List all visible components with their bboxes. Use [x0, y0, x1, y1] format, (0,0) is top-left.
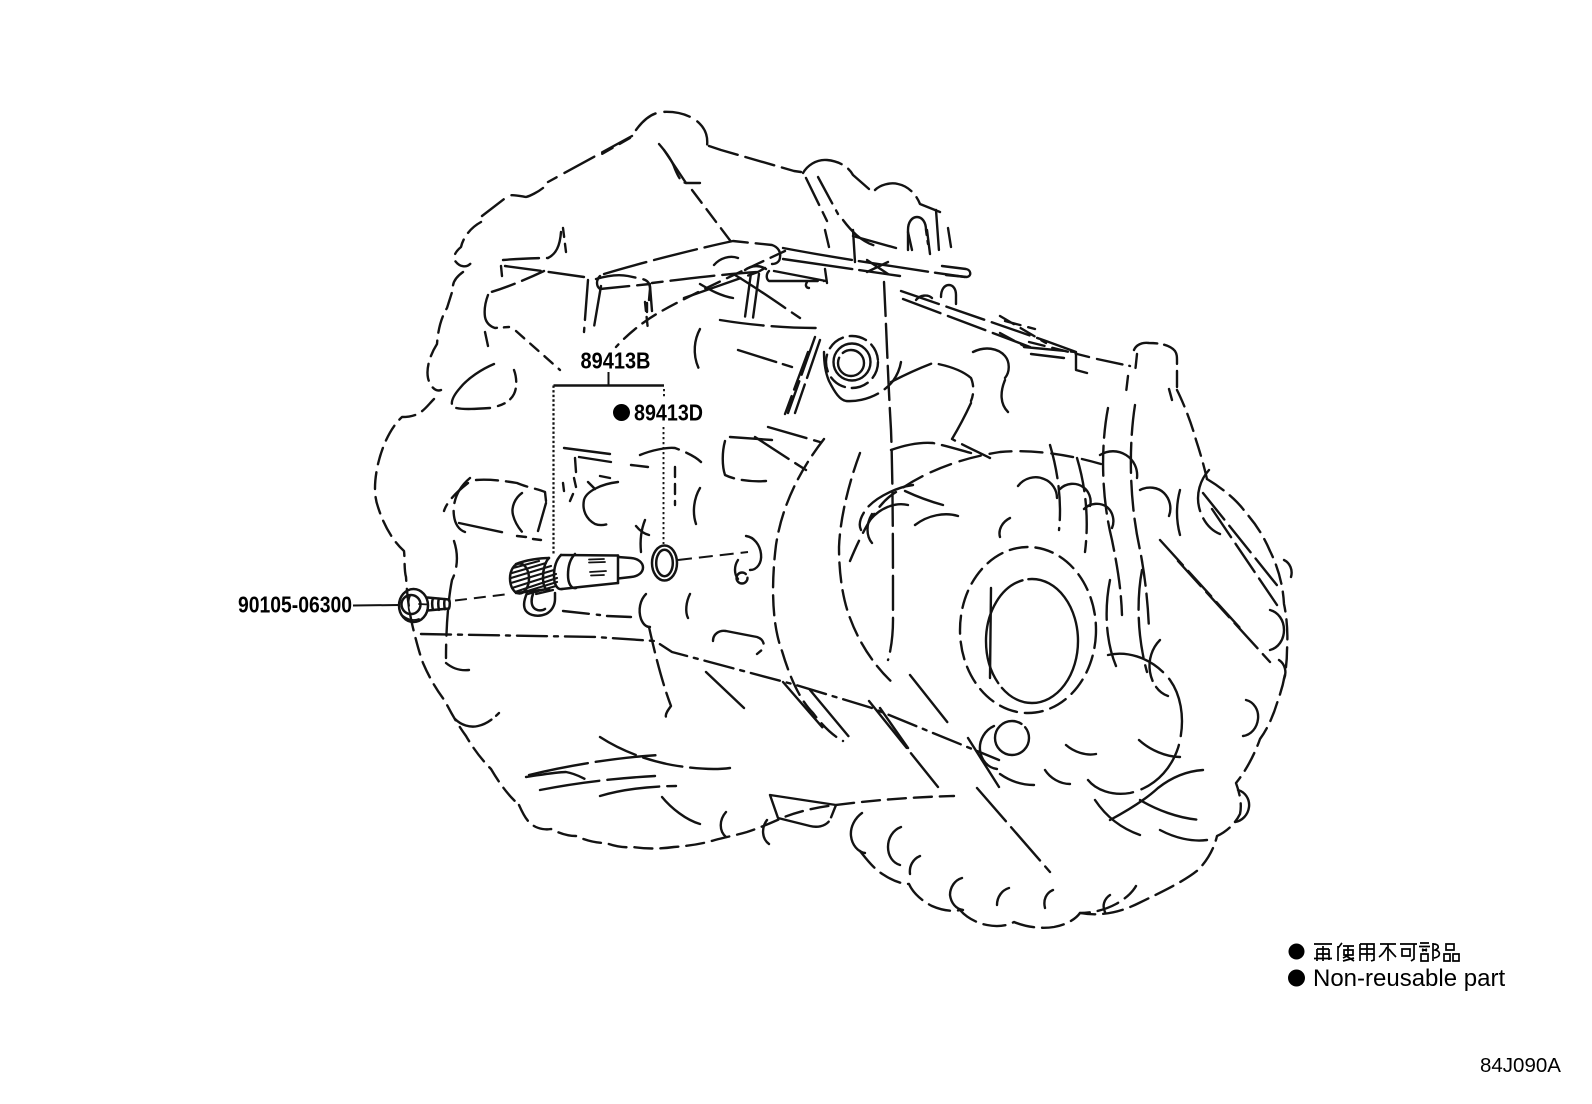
- svg-text:90105-06300: 90105-06300: [238, 592, 352, 618]
- svg-text:84J090A: 84J090A: [1480, 1054, 1561, 1077]
- svg-text:89413D: 89413D: [634, 400, 703, 426]
- svg-text:Non-reusable part: Non-reusable part: [1313, 965, 1505, 992]
- svg-text:89413B: 89413B: [581, 348, 651, 374]
